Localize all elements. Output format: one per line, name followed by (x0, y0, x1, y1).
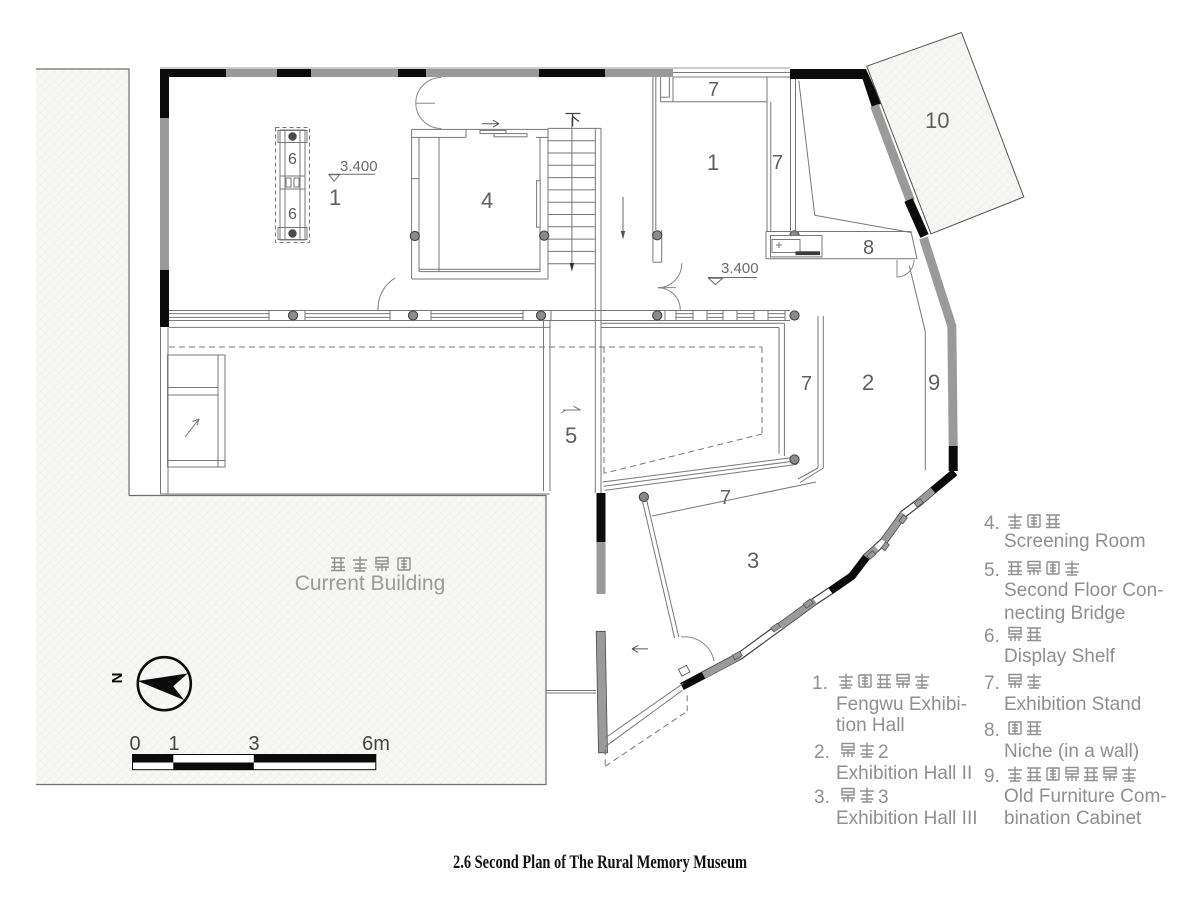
svg-text:8: 8 (863, 237, 874, 259)
svg-text:3: 3 (747, 548, 759, 573)
svg-text:2: 2 (862, 370, 874, 395)
svg-text:Display Shelf: Display Shelf (1004, 646, 1116, 667)
svg-text:10: 10 (925, 108, 949, 133)
svg-text:N: N (109, 673, 126, 684)
svg-text:Fengwu Exhibi-: Fengwu Exhibi- (836, 694, 967, 715)
svg-text:1.: 1. (812, 673, 828, 694)
svg-text:7.: 7. (984, 673, 1000, 694)
svg-text:4: 4 (481, 188, 493, 213)
svg-text:tion Hall: tion Hall (836, 715, 905, 736)
svg-text:7: 7 (801, 373, 812, 395)
svg-text:1: 1 (707, 150, 719, 175)
svg-text:2.6 Second Plan of The Rural M: 2.6 Second Plan of The Rural Memory Muse… (453, 853, 747, 873)
svg-text:6.: 6. (984, 626, 1000, 647)
svg-text:4.: 4. (984, 513, 1000, 534)
svg-text:5.: 5. (984, 560, 1000, 581)
svg-text:6m: 6m (362, 733, 390, 755)
svg-text:3.400: 3.400 (721, 260, 759, 277)
svg-text:3: 3 (248, 733, 259, 755)
svg-text:9.: 9. (984, 766, 1000, 787)
svg-text:necting Bridge: necting Bridge (1004, 603, 1125, 624)
svg-text:Exhibition Hall III: Exhibition Hall III (836, 808, 978, 829)
svg-text:9: 9 (928, 370, 940, 395)
svg-text:5: 5 (565, 423, 577, 448)
svg-text:Niche (in a wall): Niche (in a wall) (1004, 741, 1139, 762)
svg-text:Old Furniture Com-: Old Furniture Com- (1004, 786, 1167, 807)
svg-text:7: 7 (720, 487, 731, 509)
svg-text:2.: 2. (814, 742, 830, 763)
svg-text:8.: 8. (984, 720, 1000, 741)
svg-text:Second Floor Con-: Second Floor Con- (1004, 580, 1163, 601)
svg-text:2: 2 (878, 742, 889, 763)
svg-text:3.400: 3.400 (340, 158, 378, 175)
svg-text:Screening Room: Screening Room (1004, 531, 1146, 552)
svg-text:0: 0 (129, 733, 140, 755)
svg-text:6: 6 (288, 151, 297, 168)
svg-text:Exhibition Hall II: Exhibition Hall II (836, 763, 972, 784)
svg-text:3.: 3. (814, 787, 830, 808)
svg-text:Exhibition Stand: Exhibition Stand (1004, 694, 1141, 715)
svg-text:7: 7 (772, 152, 783, 174)
svg-text:3: 3 (878, 787, 889, 808)
svg-text:1: 1 (168, 733, 179, 755)
svg-text:Current Building: Current Building (295, 572, 446, 595)
svg-text:7: 7 (708, 79, 719, 101)
svg-text:bination Cabinet: bination Cabinet (1004, 808, 1142, 829)
svg-text:6: 6 (288, 206, 297, 223)
svg-text:1: 1 (329, 185, 341, 210)
